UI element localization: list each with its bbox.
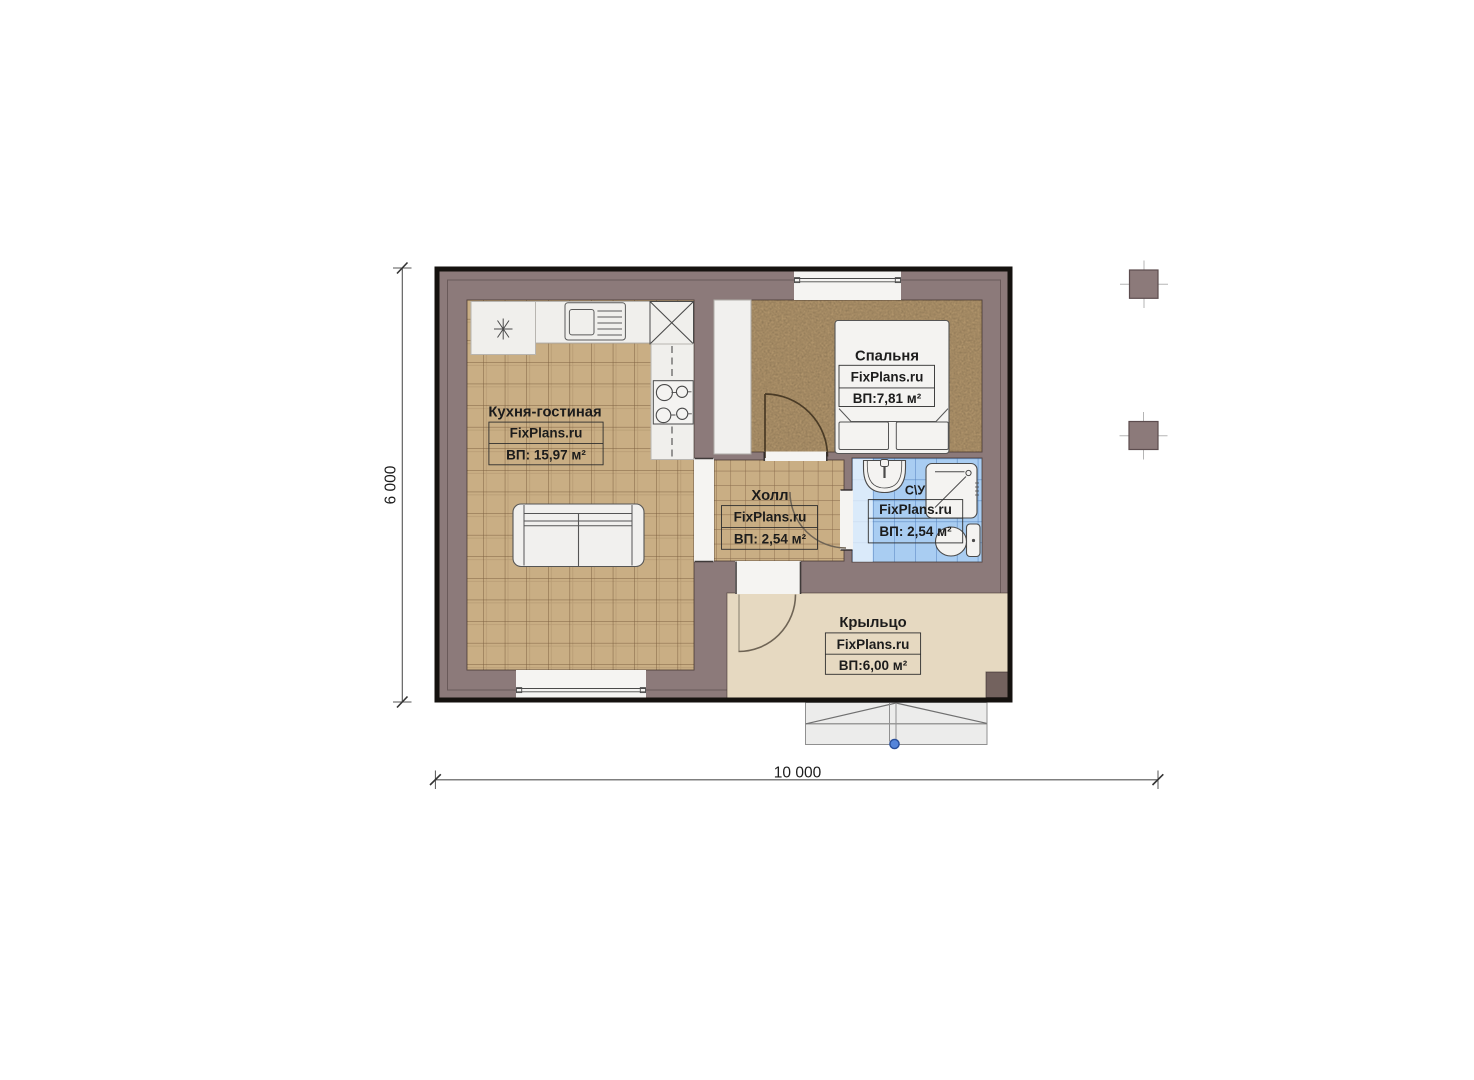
svg-text:10 000: 10 000 <box>774 765 822 782</box>
svg-text:Спальня: Спальня <box>855 349 919 365</box>
svg-text:ВП: 2,54 м²: ВП: 2,54 м² <box>879 524 952 539</box>
svg-text:FixPlans.ru: FixPlans.ru <box>837 637 910 652</box>
svg-text:ВП:7,81 м²: ВП:7,81 м² <box>853 391 922 406</box>
svg-text:6 000: 6 000 <box>383 465 400 504</box>
svg-text:ВП: 2,54 м²: ВП: 2,54 м² <box>734 531 807 546</box>
svg-text:С\У: С\У <box>905 484 926 498</box>
svg-text:FixPlans.ru: FixPlans.ru <box>851 370 924 385</box>
svg-text:Крыльцо: Крыльцо <box>839 615 906 631</box>
svg-text:Холл: Холл <box>751 488 788 504</box>
svg-text:Кухня-гостиная: Кухня-гостиная <box>488 405 601 421</box>
svg-text:ВП: 15,97 м²: ВП: 15,97 м² <box>506 447 586 462</box>
svg-text:FixPlans.ru: FixPlans.ru <box>510 425 583 440</box>
svg-text:FixPlans.ru: FixPlans.ru <box>734 510 807 525</box>
svg-text:ВП:6,00 м²: ВП:6,00 м² <box>839 658 908 673</box>
svg-text:FixPlans.ru: FixPlans.ru <box>879 502 952 517</box>
